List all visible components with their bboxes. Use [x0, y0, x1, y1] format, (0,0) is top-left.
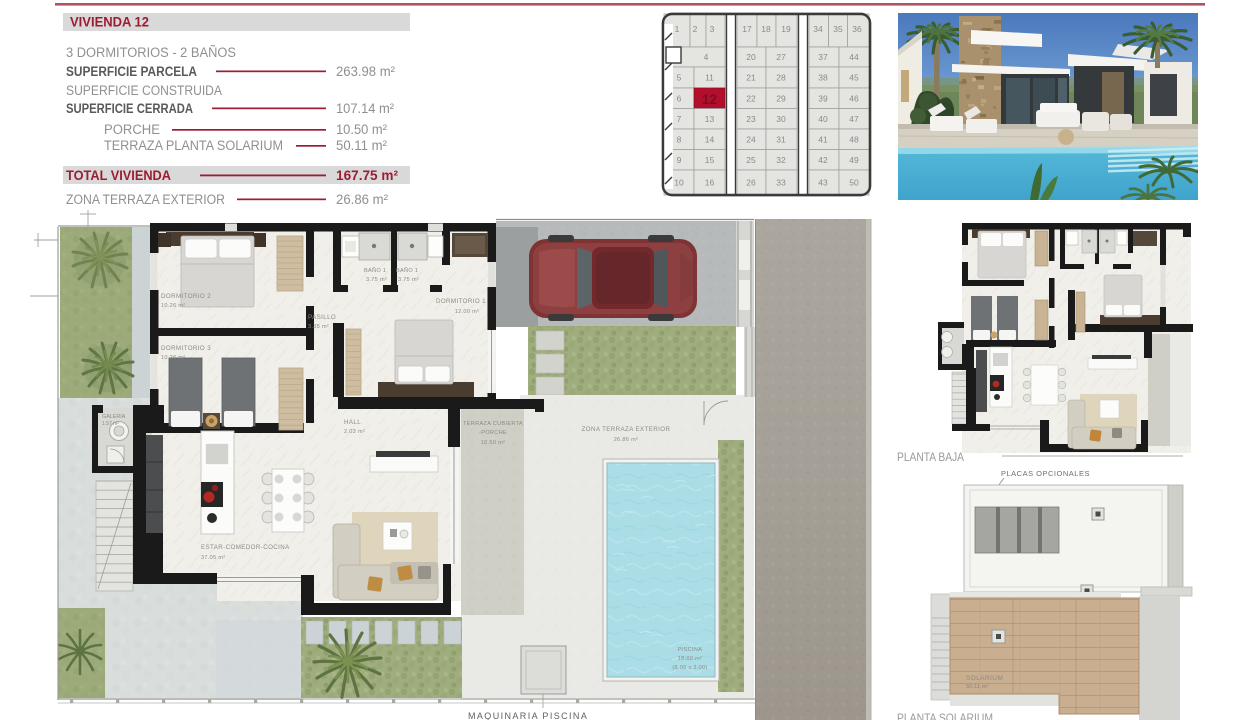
- svg-text:21: 21: [746, 73, 756, 83]
- svg-text:3 DORMITORIOS - 2 BAÑOS: 3 DORMITORIOS - 2 BAÑOS: [66, 45, 236, 60]
- svg-text:10.50 m²: 10.50 m²: [481, 440, 505, 446]
- svg-text:PLACAS OPCIONALES: PLACAS OPCIONALES: [1001, 469, 1090, 478]
- svg-text:DORMITORIO 2: DORMITORIO 2: [161, 293, 211, 300]
- svg-text:1: 1: [675, 24, 680, 34]
- svg-text:50.11 m²: 50.11 m²: [336, 138, 387, 153]
- svg-text:9: 9: [677, 155, 682, 165]
- svg-text:31: 31: [776, 134, 786, 144]
- svg-text:GALERIA: GALERIA: [102, 414, 126, 420]
- svg-text:10.50 m²: 10.50 m²: [336, 122, 387, 137]
- svg-text:PLANTA SOLARIUM: PLANTA SOLARIUM: [897, 713, 993, 720]
- svg-text:TERRAZA PLANTA SOLARIUM: TERRAZA PLANTA SOLARIUM: [104, 138, 283, 153]
- svg-text:26: 26: [746, 178, 756, 188]
- svg-text:15: 15: [705, 155, 715, 165]
- svg-text:37: 37: [818, 52, 828, 62]
- svg-text:14: 14: [705, 134, 715, 144]
- svg-text:MAQUINARIA PISCINA: MAQUINARIA PISCINA: [468, 711, 588, 720]
- svg-text:SUPERFICIE CERRADA: SUPERFICIE CERRADA: [66, 101, 193, 116]
- svg-text:49: 49: [849, 155, 859, 165]
- svg-text:TERRAZA CUBIERTA: TERRAZA CUBIERTA: [463, 421, 523, 427]
- svg-text:34: 34: [813, 24, 823, 34]
- svg-text:42: 42: [818, 155, 828, 165]
- svg-text:DORMITORIO 3: DORMITORIO 3: [161, 345, 211, 352]
- svg-text:5: 5: [677, 73, 682, 83]
- svg-text:10.26 m²: 10.26 m²: [161, 303, 185, 309]
- svg-text:SOLARIUM: SOLARIUM: [966, 675, 1003, 682]
- svg-text:107.14 m²: 107.14 m²: [336, 101, 394, 116]
- svg-text:12.00 m²: 12.00 m²: [455, 309, 479, 315]
- svg-text:33: 33: [776, 178, 786, 188]
- svg-text:6: 6: [677, 93, 682, 103]
- svg-text:ZONA TERRAZA EXTERIOR: ZONA TERRAZA EXTERIOR: [582, 426, 671, 433]
- svg-text:50: 50: [849, 178, 859, 188]
- svg-text:37.05 m²: 37.05 m²: [201, 555, 225, 561]
- svg-text:29: 29: [776, 93, 786, 103]
- svg-text:19: 19: [781, 24, 791, 34]
- svg-text:SUPERFICIE CONSTRUIDA: SUPERFICIE CONSTRUIDA: [66, 83, 222, 98]
- svg-text:25: 25: [746, 155, 756, 165]
- svg-text:8: 8: [677, 134, 682, 144]
- svg-text:PLANTA BAJA: PLANTA BAJA: [897, 452, 964, 464]
- svg-text:12: 12: [702, 92, 717, 107]
- svg-text:11: 11: [705, 73, 714, 83]
- svg-text:263.98 m²: 263.98 m²: [336, 64, 395, 79]
- svg-text:43: 43: [818, 178, 828, 188]
- svg-text:2: 2: [693, 24, 698, 34]
- svg-text:41: 41: [818, 134, 828, 144]
- svg-text:BAÑO 1: BAÑO 1: [364, 267, 386, 274]
- svg-text:13: 13: [705, 114, 715, 124]
- svg-text:3: 3: [710, 24, 715, 34]
- svg-text:3.35 m²: 3.35 m²: [308, 324, 329, 330]
- svg-text:BAÑO 1: BAÑO 1: [396, 267, 418, 274]
- svg-text:22: 22: [746, 93, 756, 103]
- svg-text:26.86 m²: 26.86 m²: [336, 192, 388, 207]
- svg-text:TOTAL VIVIENDA: TOTAL VIVIENDA: [66, 167, 171, 183]
- svg-text:4: 4: [704, 52, 709, 62]
- svg-text:44: 44: [849, 52, 859, 62]
- svg-text:46: 46: [849, 93, 859, 103]
- svg-text:ZONA TERRAZA EXTERIOR: ZONA TERRAZA EXTERIOR: [66, 192, 225, 207]
- svg-text:167.75 m²: 167.75 m²: [336, 167, 398, 183]
- svg-text:1.57 m²: 1.57 m²: [102, 421, 119, 427]
- svg-text:10.26 m²: 10.26 m²: [161, 355, 185, 361]
- svg-text:PORCHE: PORCHE: [104, 122, 160, 137]
- svg-text:HALL: HALL: [344, 419, 361, 426]
- svg-text:VIVIENDA 12: VIVIENDA 12: [70, 14, 149, 30]
- svg-text:40: 40: [818, 114, 828, 124]
- svg-text:3.75 m²: 3.75 m²: [398, 277, 419, 283]
- svg-text:PASILLO: PASILLO: [308, 314, 336, 321]
- svg-text:18: 18: [761, 24, 771, 34]
- svg-text:2.03 m²: 2.03 m²: [344, 429, 365, 435]
- svg-text:PISCINA: PISCINA: [678, 647, 702, 653]
- svg-text:35: 35: [833, 24, 843, 34]
- svg-text:18.00 m²: 18.00 m²: [678, 656, 702, 662]
- svg-text:47: 47: [849, 114, 859, 124]
- svg-text:ESTAR-COMEDOR-COCINA: ESTAR-COMEDOR-COCINA: [201, 544, 290, 551]
- svg-text:50.11 m²: 50.11 m²: [966, 684, 989, 690]
- svg-text:20: 20: [746, 52, 756, 62]
- svg-text:32: 32: [776, 155, 786, 165]
- svg-text:23: 23: [746, 114, 756, 124]
- svg-text:17: 17: [742, 24, 752, 34]
- svg-text:28: 28: [776, 73, 786, 83]
- svg-text:39: 39: [818, 93, 828, 103]
- svg-text:24: 24: [746, 134, 756, 144]
- svg-text:30: 30: [776, 114, 786, 124]
- svg-text:SUPERFICIE PARCELA: SUPERFICIE PARCELA: [66, 64, 197, 79]
- svg-text:36: 36: [852, 24, 862, 34]
- svg-text:16: 16: [705, 178, 715, 188]
- svg-text:DORMITORIO 1: DORMITORIO 1: [436, 298, 486, 305]
- svg-text:3.75 m²: 3.75 m²: [366, 277, 387, 283]
- svg-text:(6.00 x 3.00): (6.00 x 3.00): [672, 665, 707, 671]
- svg-text:48: 48: [849, 134, 859, 144]
- svg-text:26.86 m²: 26.86 m²: [614, 437, 638, 443]
- svg-text:27: 27: [776, 52, 786, 62]
- svg-text:10: 10: [674, 178, 684, 188]
- svg-text:-PORCHE: -PORCHE: [479, 430, 507, 436]
- svg-text:7: 7: [677, 114, 682, 124]
- svg-text:45: 45: [849, 73, 859, 83]
- svg-text:38: 38: [818, 73, 828, 83]
